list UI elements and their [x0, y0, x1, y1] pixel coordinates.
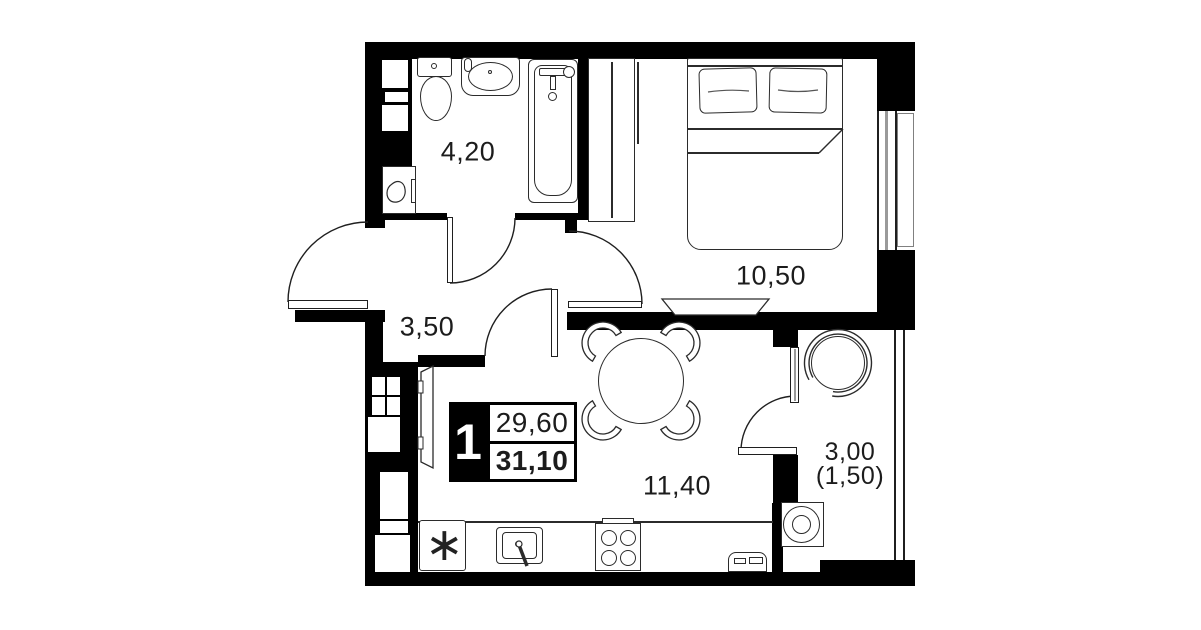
wardrobe-divider	[611, 62, 613, 218]
wall-left-strip	[365, 167, 382, 213]
stove-panel	[602, 518, 634, 524]
door-arc-balcony	[741, 396, 796, 451]
kitchen-tv-mount	[418, 381, 423, 393]
wall-kitchen-bedroom	[567, 312, 773, 330]
shaft-divider	[380, 519, 408, 521]
wall-right-pier-mid	[877, 250, 915, 312]
tv-console-leg	[692, 303, 703, 308]
floor-plan: ∗ 4,20 3,50 10,50 11,40 3,00 (1,50) 1	[0, 0, 1201, 630]
kitchen-area-label: 11,40	[643, 471, 711, 502]
wall-entrance-stub	[295, 310, 385, 322]
bedroom-window-sill	[897, 113, 914, 247]
balcony-washer-drum-inner	[792, 515, 811, 534]
unit-living-area: 29,60	[490, 405, 574, 444]
bedroom-window-glass-line	[885, 111, 888, 250]
wall-hall-kitchen	[418, 355, 485, 367]
burner	[620, 530, 636, 546]
unit-areas: 29,60 31,10	[487, 402, 577, 482]
stove	[595, 523, 641, 571]
burner	[601, 530, 617, 546]
toilet-button	[431, 63, 437, 69]
shaft-box	[368, 417, 400, 452]
wall-hall-nub	[565, 220, 577, 233]
snowflake-icon: ∗	[425, 524, 461, 564]
radiator-cell	[749, 557, 763, 564]
unit-info-block: 1 29,60 31,10	[449, 402, 577, 482]
burner	[601, 550, 617, 566]
wall-balcony-door-upper	[773, 312, 798, 347]
balcony-pane-line	[794, 349, 796, 401]
sink-faucet	[464, 58, 472, 72]
bathtub-faucet-knob	[563, 66, 575, 78]
shaft-box	[382, 105, 408, 131]
hallway-area-label: 3,50	[400, 312, 455, 343]
bathroom-area-label: 4,20	[441, 137, 496, 168]
balcony-area-reduced: (1,50)	[816, 464, 884, 488]
door-arc-kitchen	[485, 289, 552, 356]
wall-balcony-bottom	[820, 560, 915, 586]
wall-left-below-entrance	[365, 322, 383, 362]
kitchen-tv	[421, 366, 433, 468]
pillow	[769, 67, 828, 113]
blanket-line	[687, 128, 843, 130]
balcony-area-full: 3,00	[816, 440, 884, 464]
radiator-cell	[734, 558, 746, 564]
washing-machine-panel	[411, 179, 416, 203]
bathtub-faucet-stem	[550, 76, 556, 90]
burner	[620, 550, 636, 566]
bedroom-area-label: 10,50	[736, 261, 806, 292]
vent-grid-line	[372, 395, 400, 397]
pillow	[698, 67, 757, 114]
bathtub-drain	[548, 92, 557, 101]
kitchen-tv-mount	[418, 437, 423, 449]
bed-headboard-line	[687, 65, 843, 67]
unit-number: 1	[449, 402, 487, 482]
sink-drain	[488, 70, 492, 74]
shaft-box	[382, 60, 408, 88]
kitchen-door-leaf	[551, 289, 558, 357]
wall-balcony-door-lower	[773, 455, 798, 503]
door-arc-entrance	[288, 222, 368, 302]
wall-bottom	[365, 572, 825, 586]
door-arc-bathroom	[450, 218, 515, 283]
sink-basin	[468, 62, 513, 91]
shaft-box	[375, 535, 410, 572]
unit-total-area: 31,10	[490, 444, 574, 480]
armchair-seat	[811, 336, 865, 390]
balcony-area-label: 3,00 (1,50)	[816, 440, 884, 488]
wall-left-small	[365, 220, 385, 228]
bedroom-door-leaf	[568, 301, 642, 308]
wall-bath-bottom-right	[515, 213, 590, 220]
blanket-line	[687, 152, 819, 154]
dining-table	[598, 338, 684, 424]
bathroom-door-leaf	[447, 217, 453, 283]
wall-right-pier-top	[877, 59, 915, 111]
entrance-door-leaf	[288, 300, 368, 309]
door-arc-bedroom	[569, 231, 642, 304]
wall-bath-bottom-left	[365, 213, 447, 220]
wardrobe-door-line	[637, 62, 639, 144]
shaft-box	[385, 92, 408, 102]
balcony-glazing	[894, 330, 905, 560]
shaft-box	[380, 472, 408, 533]
tv-console-unit	[716, 305, 743, 311]
toilet-bowl	[420, 76, 452, 121]
kitchen-sink-drain	[515, 541, 521, 547]
balcony-door-leaf	[738, 447, 797, 455]
